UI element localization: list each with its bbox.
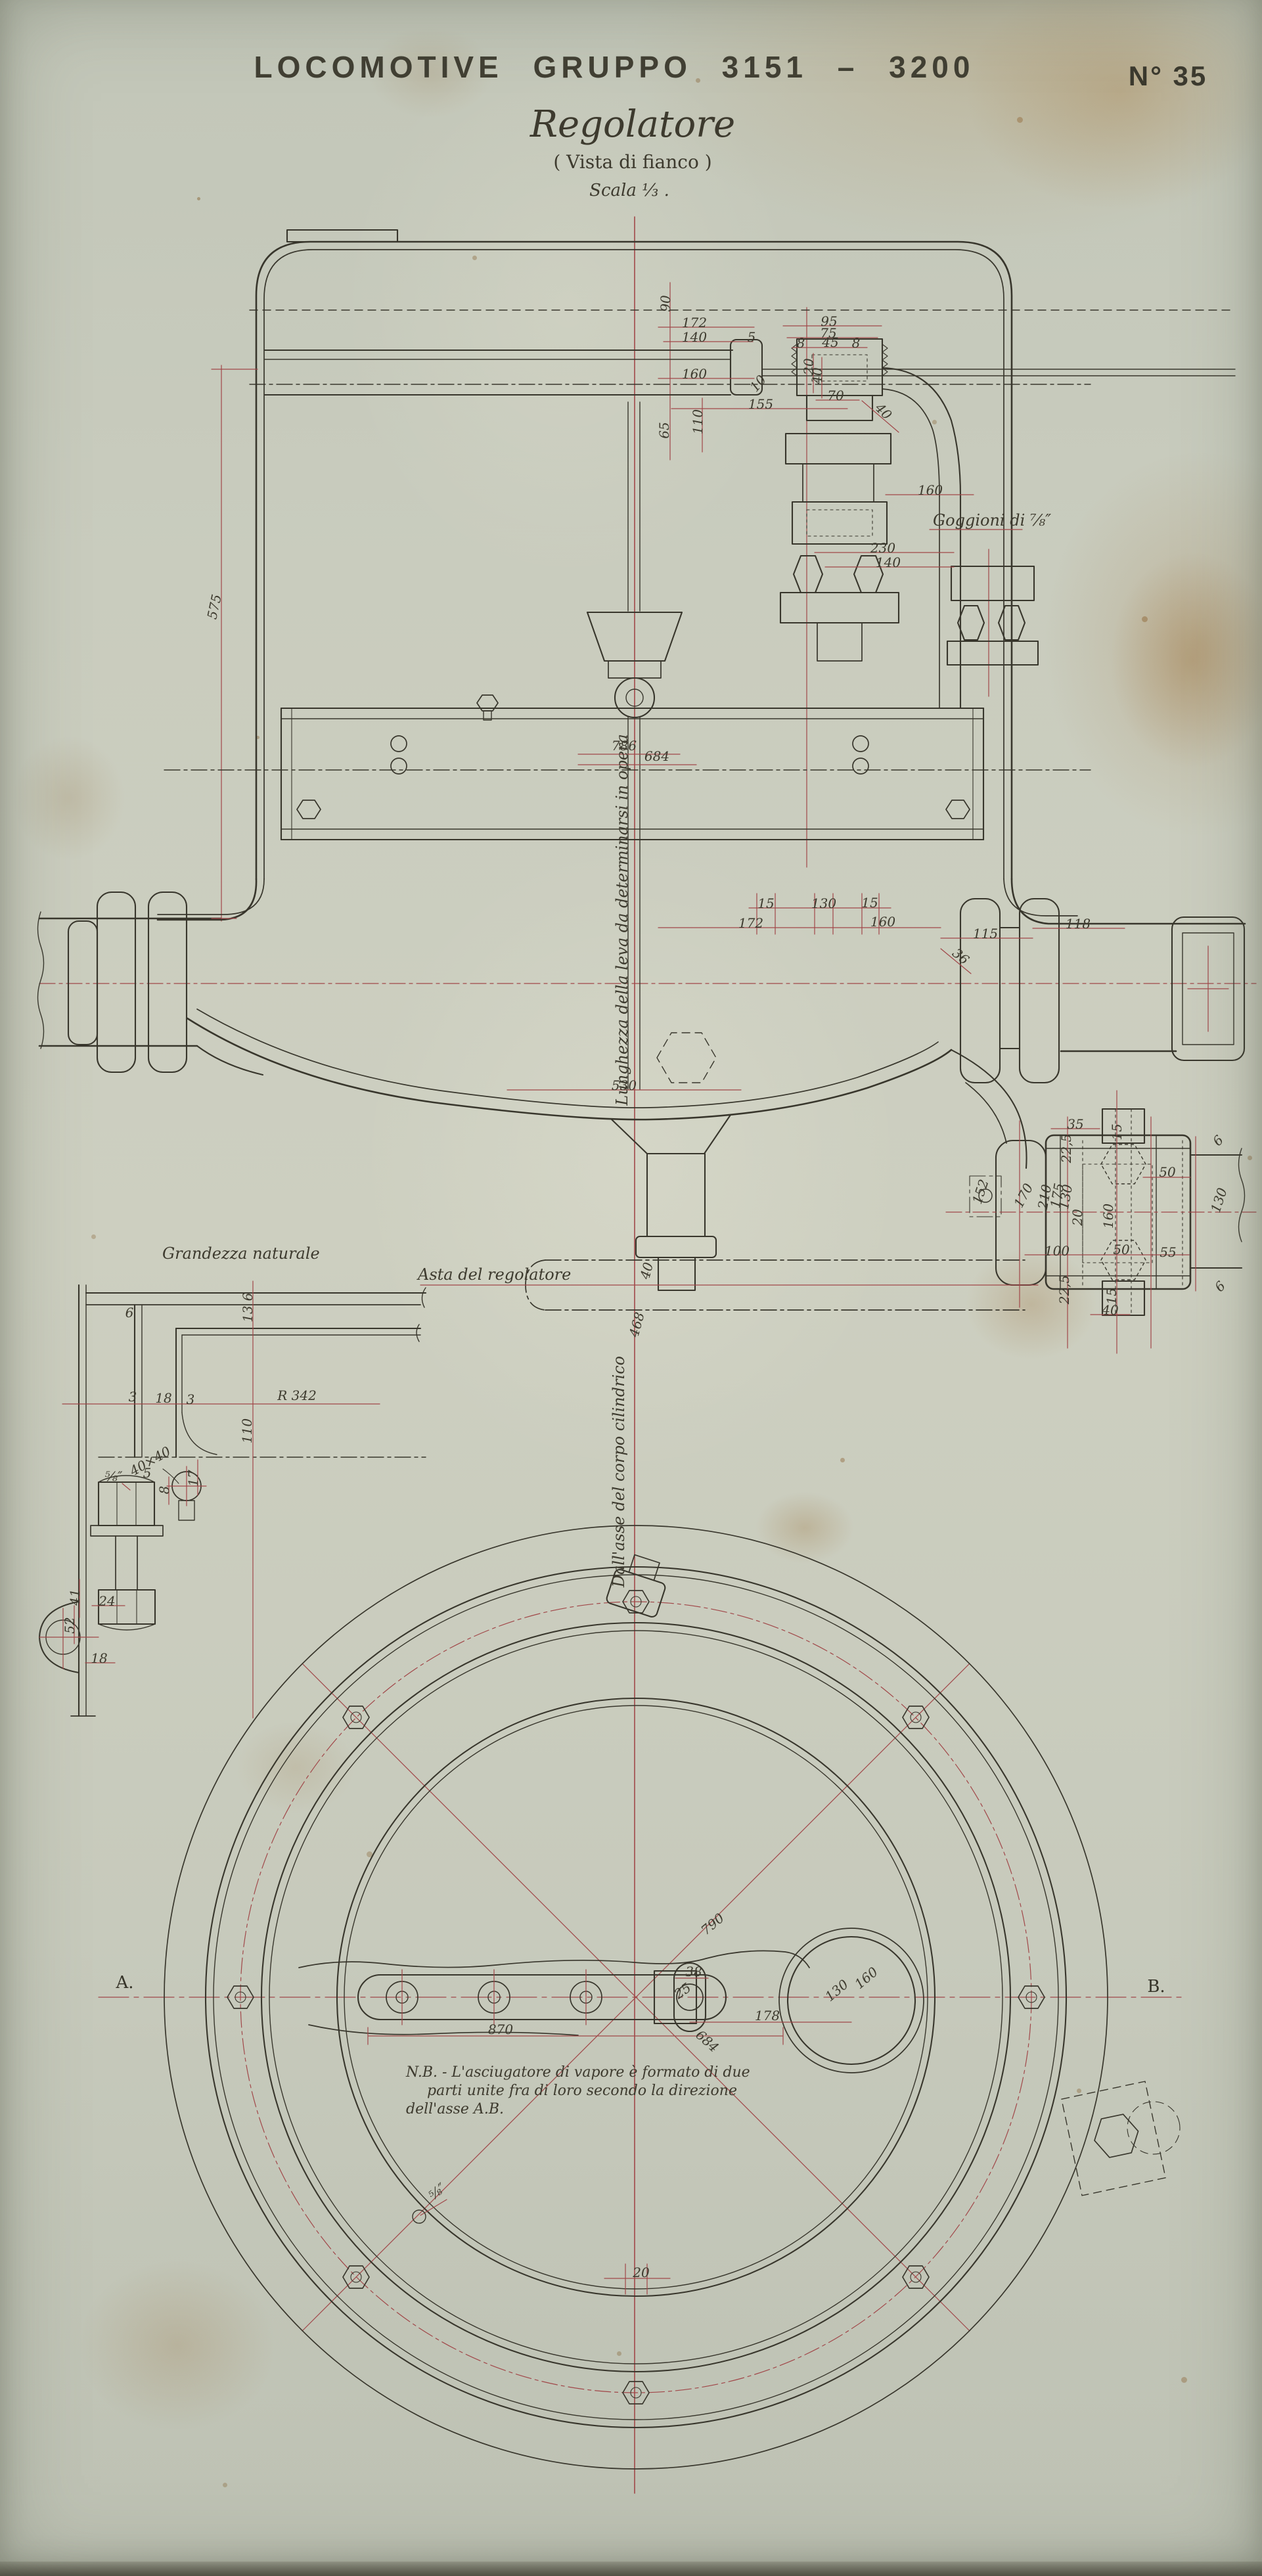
dimension-label: 160 — [870, 914, 895, 930]
dimension-label: 15 — [1109, 1123, 1125, 1140]
dimension-label: 50 — [1113, 1242, 1130, 1257]
dimension-label: ⅝″ — [105, 1468, 123, 1484]
drawing-sheet: LOCOMOTIVE GRUPPO 3151 – 3200 N° 35 Rego… — [0, 0, 1262, 2576]
dimension-label: 18 — [91, 1650, 107, 1666]
dimension-label: 40 — [637, 1261, 656, 1282]
dimension-label: 530 — [612, 1077, 637, 1093]
dimension-label: 13 — [240, 1305, 256, 1322]
dimension-label: 110 — [690, 409, 706, 434]
dimension-label: 110 — [239, 1418, 255, 1443]
dimension-label: 36 — [949, 945, 972, 968]
dimension-label: 8 — [156, 1486, 172, 1495]
studs-label: Goggioni di ⅞″ — [933, 511, 1051, 530]
dimension-label: 20 — [632, 2265, 650, 2280]
dimension-label: 172 — [738, 915, 763, 931]
dimension-label: 8 — [852, 335, 861, 351]
dimension-label: 468 — [625, 1311, 647, 1340]
dimension-label: 55 — [1160, 1244, 1176, 1260]
dimension-label: 35 — [1067, 1116, 1083, 1132]
dimension-label: 65 — [656, 422, 672, 438]
lever-length-label: Lunghezza della leva da determinarsi in … — [613, 734, 631, 1106]
dimension-label: 40 — [872, 399, 895, 423]
dimension-label: 160 — [682, 366, 707, 382]
dimension-label: 15 — [757, 895, 774, 911]
dimension-label: 786 — [612, 738, 637, 754]
dimension-label: 15 — [861, 895, 878, 911]
side-port-detail — [1062, 2076, 1190, 2196]
dimension-label: 22,5 — [1056, 1275, 1072, 1305]
dimension-label: 140 — [876, 554, 901, 570]
dimension-label: 790 — [698, 1910, 727, 1938]
dimension-label: 100 — [1045, 1243, 1070, 1259]
sheet-number: N° 35 — [1129, 60, 1208, 91]
axis-b-label: B. — [1147, 1977, 1165, 1997]
dimension-label: ⅝″ — [425, 2179, 449, 2203]
dimension-label: 115 — [973, 926, 998, 941]
dimension-label: 160 — [1100, 1204, 1116, 1229]
sheet-bottom-edge — [0, 2562, 1262, 2576]
dimension-label: 870 — [488, 2022, 513, 2037]
dimension-label: 140 — [682, 329, 707, 345]
dimension-label: 6 — [1211, 1278, 1228, 1295]
dimension-label: 41 — [67, 1589, 83, 1606]
dimension-label: 160 — [851, 1964, 881, 1992]
dimension-label: 24 — [98, 1593, 115, 1609]
dimension-label: 230 — [870, 540, 895, 556]
dimension-label: 20 — [1070, 1209, 1085, 1227]
dimension-label: 130 — [822, 1976, 851, 2004]
annotation-labels: Grandezza naturale Asta del regolatore G… — [162, 511, 1051, 1588]
dimension-label: 6 — [240, 1292, 256, 1301]
dimension-label: 684 — [644, 748, 669, 764]
axis-a-label: A. — [115, 1973, 133, 1993]
dimension-label: 90 — [658, 295, 673, 312]
dimension-label: 684 — [692, 2027, 721, 2055]
dimension-label: 130 — [1207, 1186, 1230, 1215]
note-line-3: dell'asse A.B. — [406, 2101, 504, 2117]
dimension-label: 17 — [185, 1470, 201, 1487]
dimension-label: 6 — [125, 1305, 134, 1321]
drawing-subtitle: Regolatore — [530, 103, 735, 146]
dimension-label: 3 — [187, 1391, 195, 1407]
view-label: ( Vista di fianco ) — [553, 151, 711, 173]
dimension-label: 3 — [129, 1389, 137, 1405]
dimension-label: 52 — [62, 1617, 78, 1633]
dimension-label: 38 — [685, 1964, 702, 1979]
dimension-label: 50 — [1159, 1164, 1176, 1180]
dimension-label: 70 — [827, 388, 844, 403]
plan-view-dimension-lines — [368, 1978, 851, 2294]
dimension-label: 6 — [1209, 1132, 1227, 1149]
dimension-label: 45 — [821, 334, 838, 350]
dimension-label: 178 — [755, 2008, 780, 2023]
dimension-label: 170 — [1010, 1181, 1036, 1210]
scale-label: Scala ⅓ . — [589, 181, 669, 200]
header: LOCOMOTIVE GRUPPO 3151 – 3200 N° 35 Rego… — [254, 50, 1208, 200]
dimension-label: 118 — [1066, 916, 1091, 932]
dimension-label: R 342 — [277, 1388, 317, 1403]
dimension-label: 18 — [155, 1390, 171, 1406]
dimension-label: 40 — [809, 367, 825, 385]
natural-size-label: Grandezza naturale — [162, 1244, 320, 1263]
centerlines — [39, 217, 1256, 2493]
dimension-label: 10 — [746, 372, 769, 395]
technical-drawing: LOCOMOTIVE GRUPPO 3151 – 3200 N° 35 Rego… — [0, 0, 1262, 2576]
dimension-label: 8 — [797, 335, 805, 351]
dimension-label: 22,5 — [1058, 1134, 1074, 1164]
note-line-2: parti unite fra di loro secondo la direz… — [427, 2083, 737, 2099]
side-view — [38, 230, 1257, 1353]
dimension-label: 155 — [748, 396, 773, 412]
sheet-title: LOCOMOTIVE GRUPPO 3151 – 3200 — [254, 50, 975, 84]
dimension-label: 40 — [1101, 1302, 1119, 1318]
regulator-rod-label: Asta del regolatore — [417, 1265, 571, 1284]
dimension-label: 5 — [748, 329, 756, 345]
note-line-1: N.B. - L'asciugatore di vapore è formato… — [405, 2064, 750, 2081]
dimension-label: 5 — [143, 1465, 152, 1481]
dimension-label: 172 — [682, 315, 707, 330]
cylinder-axis-label: Dall'asse del corpo cilindrico — [610, 1356, 628, 1588]
dimension-label: 130 — [811, 895, 836, 911]
dimension-labels: 9017214059575845820401601011015570406557… — [62, 295, 1230, 2280]
dimension-label: 160 — [918, 482, 943, 498]
